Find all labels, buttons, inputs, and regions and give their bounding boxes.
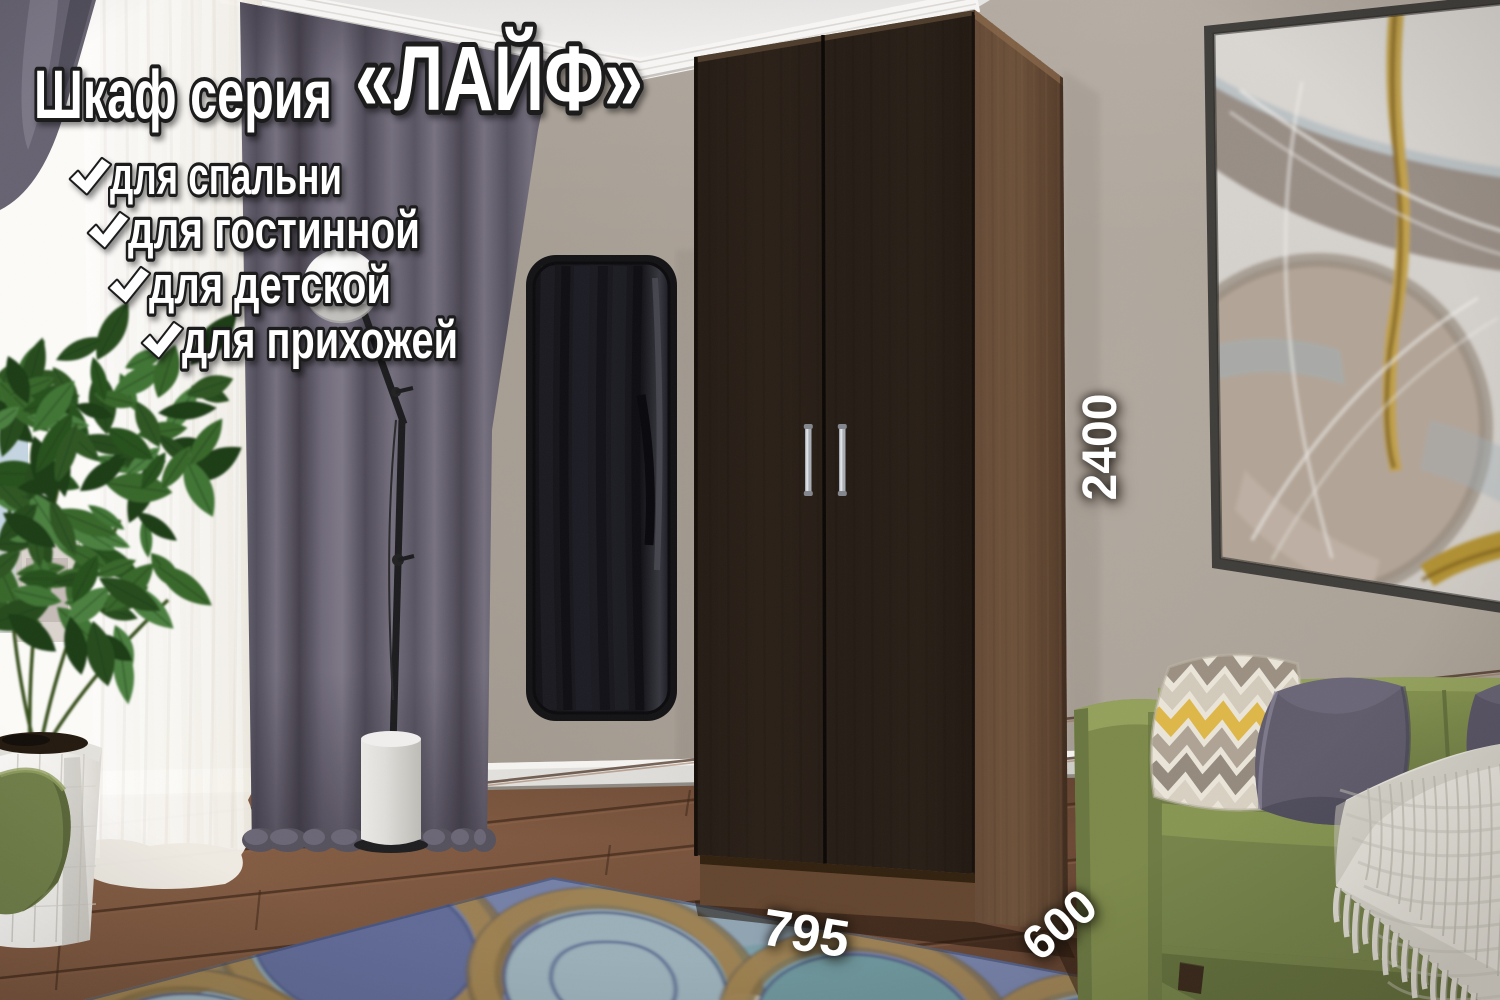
svg-text:для гостинной: для гостинной <box>128 201 420 260</box>
svg-text:2400: 2400 <box>1074 394 1127 501</box>
svg-text:для детской: для детской <box>149 256 391 315</box>
svg-text:Шкаф серия: Шкаф серия <box>34 56 332 133</box>
svg-text:для спальни: для спальни <box>110 147 342 206</box>
svg-text:«ЛАЙФ»: «ЛАЙФ» <box>355 26 643 130</box>
svg-text:для прихожей: для прихожей <box>182 311 458 370</box>
